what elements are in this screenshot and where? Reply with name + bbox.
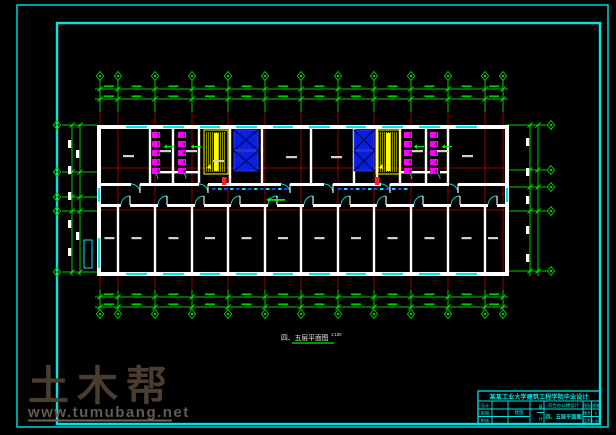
dim-text-blob [526,138,529,146]
dim-text-blob [205,85,215,87]
axis-bubble-number [337,75,339,77]
door-gap [231,204,240,208]
dim-text-blob [351,95,361,97]
wall-partition-south [447,207,449,272]
wall-partition-south [484,207,486,272]
room-label-blob [315,237,325,239]
window-north [346,126,366,128]
room-label-blob [462,237,472,239]
room-label-blob [278,237,288,239]
toilet-stall-door [410,161,412,164]
toilet-stall-door [158,143,160,146]
dim-text-blob [351,293,361,295]
west-entry-steps [84,240,92,268]
wall-partition-south [337,207,339,272]
dim-text-blob [462,85,472,87]
titleblock-sheet-type-value: 建施 [592,403,600,408]
corridor-fixture-dash [284,188,288,190]
window-south [163,273,184,275]
dim-text-blob [315,85,325,87]
titleblock-sheet-no-value: 8 [595,412,597,416]
axis-bubble-number [56,271,58,273]
dim-text-blob [242,95,252,97]
axis-bubble-number [502,75,504,77]
dim-text-blob [388,293,398,295]
axis-bubble-number [191,75,193,77]
window-corridor-east [506,188,508,202]
axis-bubble-number [154,313,156,315]
room-label-blob [213,160,224,162]
titleblock-designer-label: 设计 [481,402,489,409]
axis-bubble-number [264,75,266,77]
dim-text-blob [68,140,71,148]
titleblock-sheet-type-label: 图别 [583,403,591,408]
window-south [419,273,440,275]
dim-text-blob [526,254,529,262]
toilet-stall-door [158,152,160,155]
window-south [273,273,293,275]
titleblock-discipline-cell: 建施 [514,409,524,416]
toilet-stall-door [184,134,186,137]
dim-text-blob [68,192,71,200]
dim-text-blob [489,293,499,295]
dim-text-blob [132,85,142,87]
dim-text-blob [104,85,114,87]
toilet-stall-door [410,134,412,137]
axis-bubble-number [550,270,552,272]
dim-text-blob [278,95,288,97]
window-corridor-west [98,188,100,202]
axis-bubble-number [410,75,412,77]
door-gap [377,204,386,208]
window-north [200,126,220,128]
corridor-fixture-dash [338,188,342,190]
room-label-blob [437,150,448,152]
axis-grid [53,72,554,319]
window-west [98,238,100,268]
titleblock-drafter-label: 制图 [481,410,489,417]
dim-text-blob [351,85,361,87]
toilet-stall-door [184,170,186,173]
wall-partition-north [310,129,312,183]
corridor-fixture-dash [374,188,378,190]
corridor-fixture-dash [344,188,348,190]
toilet-stall-door [436,143,438,146]
toilet-stall-door [436,170,438,173]
corridor-fixture-dash [356,188,360,190]
door-gap [341,204,350,208]
axis-bubble-number [484,75,486,77]
dim-text-blob [526,226,529,234]
axis-bubble-number [56,210,58,212]
room-label-blob [286,156,297,158]
axis-bubble-number [550,210,552,212]
window-south [126,273,147,275]
dim-text-blob [242,293,252,295]
axis-bubble-number [550,169,552,171]
axis-bubble-number [373,75,375,77]
floor-plan [84,125,509,276]
wall-partition-south [373,207,375,272]
dim-text-blob [205,303,215,305]
room-label-blob [242,237,252,239]
dim-text-blob [425,303,435,305]
room-label-blob [123,155,134,157]
axis-bubble-number [337,313,339,315]
corridor-fixture-dash [248,188,252,190]
dim-text-blob [526,168,529,176]
corridor-fixture-dash [218,188,222,190]
corridor-fixture-dash [362,188,366,190]
axis-bubble-number [300,75,302,77]
title-block: 某某工业大学建筑工程学院毕业设计 设计 制图 审核 建施 设 计 综合办公楼设计… [478,391,601,424]
plan-caption: 四、五层平面图 1:100 [281,332,342,343]
titleblock-scale-value: 1:100 [591,419,601,423]
corridor-fixture-dash [224,188,228,190]
corridor-fixture-dash [212,188,216,190]
watermark-brand: 土木帮 [28,363,175,409]
toilet-stall-door [158,134,160,137]
dim-text-blob [68,166,71,174]
toilet-stall-door [436,161,438,164]
wall-partition-north [261,129,263,183]
window-south [309,273,330,275]
dim-text-blob [242,85,252,87]
cad-sheet: 四、五层平面图 1:100 某某工业大学建筑工程学院毕业设计 设计 制图 审核 [0,0,616,435]
door-gap [121,204,130,208]
cad-canvas: 四、五层平面图 1:100 某某工业大学建筑工程学院毕业设计 设计 制图 审核 [0,0,616,435]
direction-arrow [167,146,174,147]
dim-text-blob [351,303,361,305]
dim-text-blob [489,303,499,305]
room-label-blob [351,237,361,239]
direction-arrow-head [414,144,417,148]
titleblock-sheet-no-label: 图号 [583,411,591,416]
toilet-stall-door [158,161,160,164]
fire-hydrant-mark [222,177,227,185]
dim-text-blob [68,248,71,256]
window-north [126,126,147,128]
axis-bubble-number [550,124,552,126]
door-gap [488,204,497,208]
wall-partition-south [154,207,156,272]
wall-partition-south [117,207,119,272]
axis-bubble-number [56,124,58,126]
corridor-fixture-dash [272,188,276,190]
titleblock-school-title: 某某工业大学建筑工程学院毕业设计 [489,393,590,401]
dim-text-blob [104,303,114,305]
dim-text-blob [462,303,472,305]
toilet-stall-door [436,152,438,155]
window-north [163,126,184,128]
toilet-stall-door [410,152,412,155]
window-south [200,273,220,275]
wall-exterior-north [97,125,509,129]
corridor-fixture-dash [278,188,282,190]
wall-partition-north [198,129,200,183]
corridor-fixture-dash [350,188,354,190]
corridor-annotation-arrow [266,198,270,203]
room-label-blob [105,237,115,239]
window-north [309,126,330,128]
door-gap [451,204,460,208]
toilet-stall-door [184,143,186,146]
dim-text-blob [462,95,472,97]
window-north [273,126,293,128]
watermark: 土木帮 www.tumubang.net [27,363,190,421]
door-gap [304,204,313,208]
dim-text-blob [489,95,499,97]
room-label-blob [160,150,171,152]
dim-text-blob [526,196,529,204]
room-label-blob [331,156,342,158]
wall-corridor-north [101,183,505,186]
dim-text-blob [388,95,398,97]
plan-scale-text: 1:100 [331,332,342,337]
axis-bubble-number [154,75,156,77]
corridor-fixture-dash [266,188,270,190]
corridor-fixture-dash [404,188,408,190]
window-north [419,126,440,128]
direction-arrow-head [442,144,445,148]
axis-bubble-number [99,75,101,77]
dim-text-blob [169,303,179,305]
corridor-fixture-dash [242,188,246,190]
corridor-fixture-dash [236,188,240,190]
dim-text-blob [169,293,179,295]
dim-text-blob [278,303,288,305]
corridor-annotation [270,199,285,201]
titleblock-drawing-name: 四、五层平面图 [545,413,581,421]
toilet-stall-door [410,170,412,173]
direction-arrow-head [164,144,167,148]
plan-caption-text: 四、五层平面图 [281,334,329,342]
room-label-blob [488,237,498,239]
dim-text-blob [278,85,288,87]
axis-bubble-number [502,313,504,315]
dim-text-blob [205,95,215,97]
axis-bubble-number [373,313,375,315]
corridor-fixture-dash [398,188,402,190]
wall-partition-north [149,129,151,183]
dim-text-blob [68,220,71,228]
dim-text-blob [169,85,179,87]
wall-partition-south [264,207,266,272]
corridor-fixture-dash [368,188,372,190]
corridor-fixture-dash [260,188,264,190]
corridor-fixture-dash [254,188,258,190]
room-label-blob [132,237,142,239]
corridor-fixture-dash [392,188,396,190]
corridor-fixture-dash [380,188,384,190]
direction-arrow [445,146,452,147]
dim-text-blob [132,293,142,295]
axis-bubble-number [117,313,119,315]
door-gap [414,204,423,208]
window-south [236,273,257,275]
dim-text-blob [242,303,252,305]
wall-partition-north [172,129,174,183]
axis-bubble-number [117,75,119,77]
dim-text-blob [132,95,142,97]
window-south [382,273,403,275]
door-gap [158,204,167,208]
wall-exterior-south [97,272,509,276]
wall-partition-north [425,129,427,183]
axis-bubble-number [300,313,302,315]
axis-bubble-number [227,75,229,77]
dim-text-blob [169,95,179,97]
window-north [382,126,403,128]
dim-text-blob [489,85,499,87]
room-label-blob [186,150,197,152]
axis-bubble-number [484,313,486,315]
toilet-stall-door [184,161,186,164]
dim-text-blob [425,85,435,87]
toilet-stall-door [158,170,160,173]
room-label-blob [169,237,179,239]
wall-partition-south [191,207,193,272]
wall-partition-south [227,207,229,272]
dim-text-blob [388,303,398,305]
direction-arrow [417,146,424,147]
stair-flight-divider [386,133,391,171]
room-label-blob [462,155,473,157]
axis-bubble-number [56,171,58,173]
titleblock-project-name: 综合办公楼设计 [548,402,579,409]
dim-text-blob [104,293,114,295]
dim-text-blob [425,293,435,295]
dim-text-blob [388,85,398,87]
dim-text-blob [104,95,114,97]
axis-bubble-number [550,186,552,188]
window-south [456,273,477,275]
window-north [456,126,477,128]
room-label-blob [388,237,398,239]
window-north [236,126,257,128]
watermark-url: www.tumubang.net [27,404,190,421]
titleblock-checker-label: 审核 [481,417,490,424]
axis-bubble-number [410,313,412,315]
dim-text-blob [315,95,325,97]
wall-partition-south [300,207,302,272]
stair-flight-divider [214,133,219,171]
axis-bubble-number [56,196,58,198]
axis-bubble-number [227,313,229,315]
titleblock-scale-label: 比例 [583,418,591,423]
wall-partition-south [410,207,412,272]
axis-bubble-number [191,313,193,315]
window-south [346,273,366,275]
axis-bubble-number [447,75,449,77]
dim-text-blob [315,293,325,295]
toilet-stall-door [410,143,412,146]
axis-bubble-number [99,313,101,315]
dim-text-blob [425,95,435,97]
toilet-stall-door [184,152,186,155]
direction-arrow [194,146,201,147]
room-label-blob [205,237,215,239]
dim-text-blob [278,293,288,295]
axis-bubble-number [447,313,449,315]
door-gap [195,204,204,208]
dim-text-blob [205,293,215,295]
dim-text-blob [462,293,472,295]
dim-text-blob [132,303,142,305]
fire-hydrant-mark [375,177,380,185]
dim-text-blob [76,150,79,158]
axis-bubble-number [264,313,266,315]
dim-text-blob [76,232,79,240]
room-label-blob [412,150,423,152]
door-gap [268,204,277,208]
room-label-blob [425,237,435,239]
toilet-stall-door [436,134,438,137]
wall-partition-north [447,129,449,183]
titleblock-narrow-cell-2: 计 [538,416,543,423]
titleblock-narrow-cell-1: 设 [538,403,543,410]
corridor-fixture-dash [230,188,234,190]
dim-text-blob [315,303,325,305]
corridor-fixture-dash [386,188,390,190]
wall-partition-north [229,129,231,183]
